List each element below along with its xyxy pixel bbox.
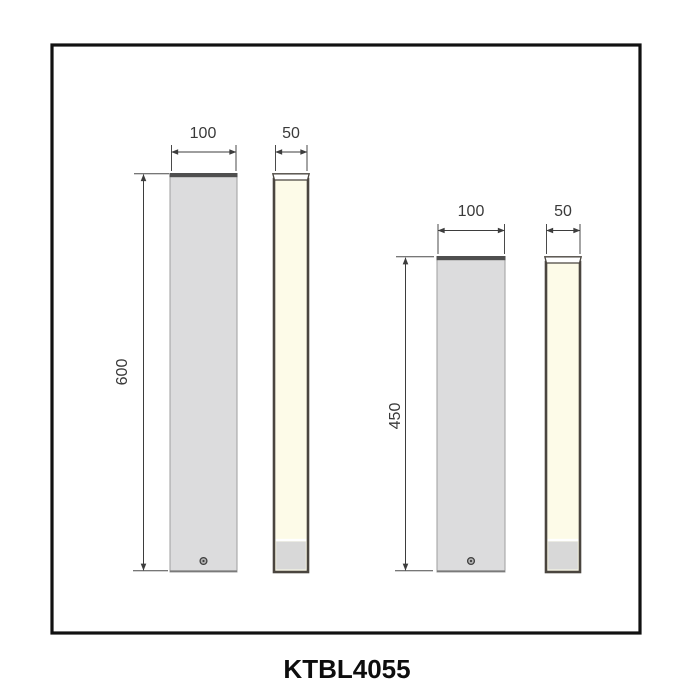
dim-label-front-width-600: 100 <box>190 125 217 142</box>
bollard-450-front-view <box>437 256 506 572</box>
bollard-600-front-view <box>170 173 238 572</box>
technical-drawing-canvas: 100 50 600 <box>0 0 700 694</box>
front-top-cap <box>437 256 506 260</box>
screw-center-icon <box>470 560 472 562</box>
dim-label-height-450: 450 <box>387 403 404 430</box>
dim-label-side-width-600: 50 <box>282 125 300 142</box>
dim-600-front-width: 100 <box>172 125 237 171</box>
dim-label-height-600: 600 <box>114 359 131 386</box>
dim-450-front-width: 100 <box>438 203 505 254</box>
front-body <box>437 257 505 572</box>
dim-450-height: 450 <box>387 257 434 571</box>
side-base <box>276 542 306 570</box>
dim-label-front-width-450: 100 <box>458 203 485 220</box>
side-lens <box>546 262 580 572</box>
side-top-cap <box>545 257 581 263</box>
dim-label-side-width-450: 50 <box>554 203 572 220</box>
side-top-cap <box>273 174 309 180</box>
screw-center-icon <box>202 560 204 562</box>
side-base <box>548 542 578 570</box>
drawing-page: 100 50 600 <box>0 0 700 694</box>
product-code-label: KTBL4055 <box>283 654 410 684</box>
dim-600-height: 600 <box>114 174 169 571</box>
front-body <box>170 174 237 572</box>
bollard-450-side-view <box>545 257 581 572</box>
bollard-600-side-view <box>273 174 309 572</box>
bollard-450-group: 100 50 450 <box>387 203 581 572</box>
bollard-600-group: 100 50 600 <box>114 125 309 572</box>
dim-450-side-width: 50 <box>547 203 581 254</box>
side-lens <box>274 179 308 572</box>
dim-600-side-width: 50 <box>276 125 308 171</box>
front-top-cap <box>170 173 238 177</box>
